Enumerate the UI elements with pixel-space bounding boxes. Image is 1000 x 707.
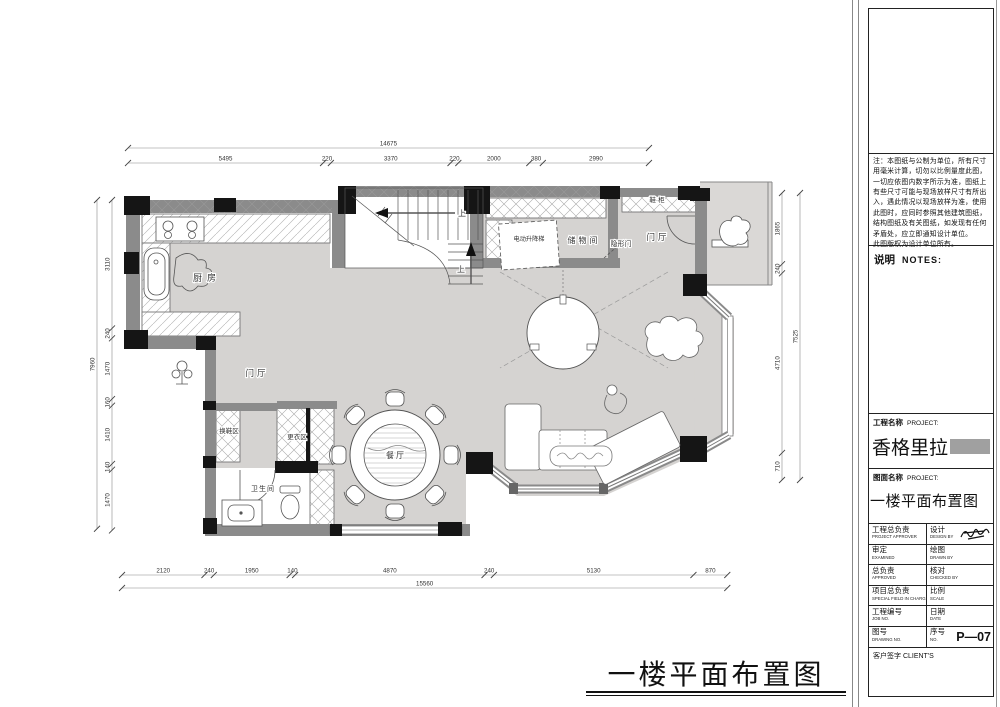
title-underline-2 [586,695,846,696]
row-sublabel: APPROVED [872,575,923,580]
client-signature-row: 客户签字 CLIENT'S [869,647,993,696]
svg-text:240: 240 [484,568,495,575]
dim-chain-left: 7960 [90,197,101,532]
svg-text:7525: 7525 [793,329,800,343]
row-sublabel: CHECKED BY [930,575,990,580]
row-label: 比例 [930,587,990,596]
row-label: 总负责 [872,567,923,576]
svg-text:1410: 1410 [105,427,112,441]
svg-text:870: 870 [705,568,716,575]
notes-header-en: NOTES: [902,255,942,265]
row-label: 日期 [930,608,990,617]
notes-block: 注：本图纸与公制为单位，所有尺寸用毫米计算，切勿以比例量度此图，一切应依图内数字… [869,153,993,245]
svg-text:710: 710 [775,461,782,472]
drawing-label-cn: 图面名称 [873,473,903,482]
row-sublabel: DRAWN BY [930,555,990,560]
svg-text:240: 240 [775,263,782,274]
dim-chain-right: 7525 [793,190,804,483]
project-label-cn: 工程名称 [873,418,903,427]
notes-text: 注：本图纸与公制为单位，所有尺寸用毫米计算，切勿以比例量度此图，一切应依图内数字… [873,157,989,250]
svg-text:隐形门: 隐形门 [611,239,632,248]
row-sublabel: SPECIAL FIELD IN CHARGE [872,596,923,601]
title-block-row: 图号DRAWING NO. 序号NO. P—07 [869,627,993,648]
title-underline-1 [586,691,846,693]
svg-text:鞋·柜: 鞋·柜 [649,195,665,204]
svg-text:电动升降梯: 电动升降梯 [514,235,545,243]
redacted-text-block [950,439,990,454]
row-sublabel: PROJECT APPROVER [872,534,923,539]
svg-text:换鞋区: 换鞋区 [219,426,239,435]
svg-text:厨房: 厨房 [193,272,221,283]
svg-text:4710: 4710 [775,356,782,370]
serial-number-value: P—07 [956,630,991,644]
row-sublabel: JOB NO. [872,616,923,621]
drawing-name-label: 图面名称PROJECT: [869,469,993,484]
project-name-section: 工程名称PROJECT: 香格里拉 [869,413,993,468]
svg-text:5130: 5130 [587,568,601,575]
row-label: 工程编号 [872,608,923,617]
row-label: 项目总负责 [872,587,923,596]
svg-text:储物间: 储物间 [568,235,601,245]
svg-text:1865: 1865 [775,221,782,235]
svg-text:220: 220 [449,156,460,163]
svg-text:7960: 7960 [90,357,97,371]
dim-chain-top: 14675 [125,141,652,152]
signature-scribble [958,525,992,542]
animal-rug [645,316,703,360]
project-label-en: PROJECT: [907,420,938,427]
svg-text:门厅: 门厅 [245,368,268,378]
row-label: 审定 [872,546,923,555]
frame-divider-line-1 [852,0,853,707]
svg-text:3370: 3370 [384,156,398,163]
frame-right-border [996,0,997,707]
drawing-name-section: 图面名称PROJECT: 一楼平面布置图 [869,468,993,523]
row-label: 工程总负责 [872,526,923,535]
project-name-label: 工程名称PROJECT: [869,414,993,429]
dim-chain-top: 5495220337022020003802990 [125,156,652,167]
title-block-row: 项目总负责SPECIAL FIELD IN CHARGE 比例SCALE [869,586,993,607]
svg-text:3110: 3110 [105,257,112,271]
dim-chain-bottom: 15560 [119,581,730,592]
svg-text:140: 140 [287,568,298,575]
dim-chain-bottom: 2120240195014048702405130870 [119,568,730,579]
svg-text:4870: 4870 [383,568,397,575]
svg-text:240: 240 [204,568,215,575]
rug [550,446,612,466]
plant-icon [172,361,192,384]
svg-text:14675: 14675 [380,141,398,148]
title-block-row: 总负责APPROVED 核对CHECKED BY [869,565,993,586]
svg-text:140: 140 [105,461,112,472]
svg-text:380: 380 [531,156,542,163]
panel-top-spacer [869,9,993,153]
drawing-label-en: PROJECT: [907,475,938,482]
row-sublabel: DRAWING NO. [872,637,923,642]
title-block-panel: 注：本图纸与公制为单位，所有尺寸用毫米计算，切勿以比例量度此图，一切应依图内数字… [868,8,994,697]
row-sublabel: DATE [930,616,990,621]
dim-chain-right: 18652404710710 [775,190,786,483]
row-label: 绘图 [930,546,990,555]
svg-text:更衣区: 更衣区 [287,432,307,441]
notes-header-cn: 说明 [874,254,895,266]
title-block-row: 审定EXAMINED 绘图DRAWN BY [869,545,993,566]
drawing-title: 一楼平面布置图 [585,653,847,693]
electric-lift-platform [498,220,559,270]
dim-chain-left: 3110240147016014101401470 [105,197,116,533]
row-label: 核对 [930,567,990,576]
svg-text:上: 上 [458,209,466,218]
svg-text:1950: 1950 [245,568,259,575]
svg-text:15560: 15560 [416,581,434,588]
title-block-row: 工程编号JOB NO. 日期DATE [869,606,993,627]
svg-text:2120: 2120 [156,568,170,575]
svg-text:门厅: 门厅 [646,232,669,242]
title-block-rows: 工程总负责PROJECT APPROVER 设计DESIGN BY 审定EXAM… [869,523,993,647]
drawing-sheet: 5495220337022020003802990146752120240195… [0,0,1000,707]
svg-text:240: 240 [105,328,112,339]
frame-divider-line-2 [858,0,859,707]
notes-header: 说明NOTES: [869,245,993,413]
svg-text:220: 220 [322,156,333,163]
drawing-name: 一楼平面布置图 [869,484,993,511]
svg-text:2990: 2990 [589,156,603,163]
floor-plan: 5495220337022020003802990146752120240195… [0,0,1000,707]
svg-text:160: 160 [105,397,112,408]
row-sublabel: SCALE [930,596,990,601]
title-block-row: 工程总负责PROJECT APPROVER 设计DESIGN BY [869,524,993,545]
svg-text:卫生间: 卫生间 [251,484,275,493]
svg-text:1470: 1470 [105,493,112,507]
project-name: 香格里拉 [872,433,948,460]
svg-text:餐厅: 餐厅 [386,451,406,460]
svg-text:1470: 1470 [105,361,112,375]
row-label: 图号 [872,628,923,637]
row-sublabel: EXAMINED [872,555,923,560]
svg-text:5495: 5495 [219,156,233,163]
svg-text:2000: 2000 [487,156,501,163]
svg-text:上: 上 [457,265,465,274]
